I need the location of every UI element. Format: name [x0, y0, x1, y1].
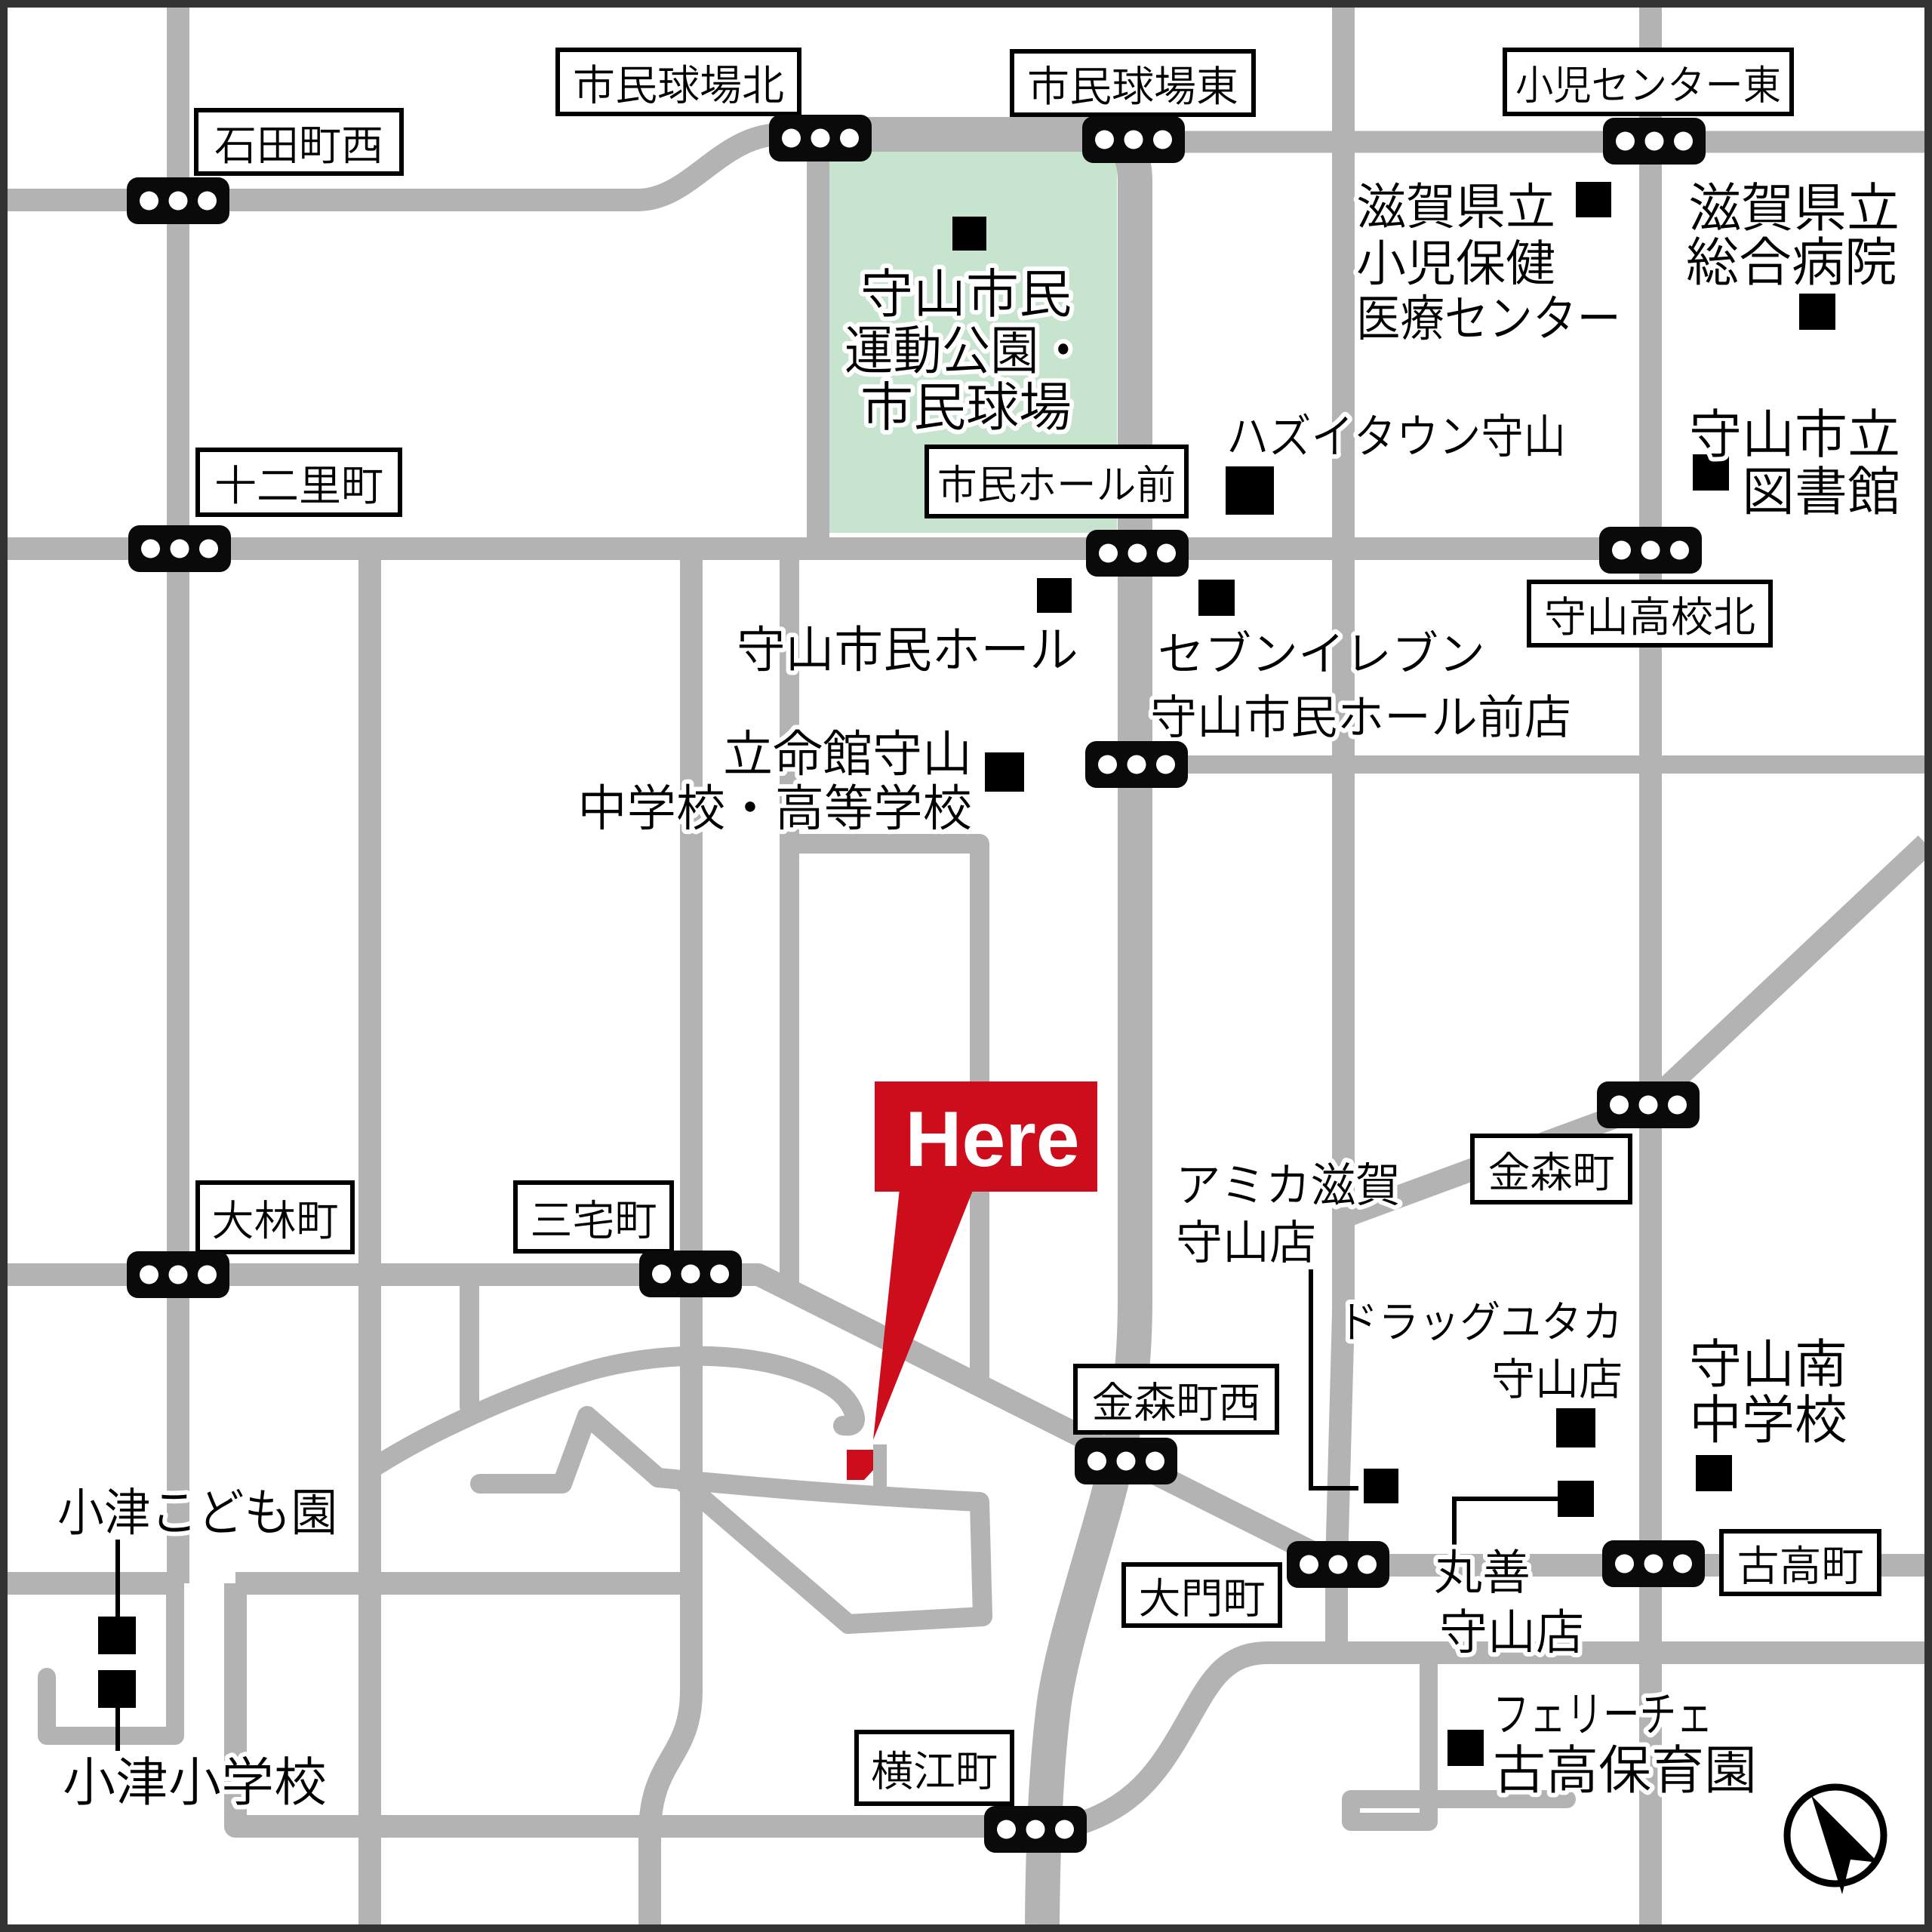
svg-text:Here: Here [905, 1096, 1079, 1183]
